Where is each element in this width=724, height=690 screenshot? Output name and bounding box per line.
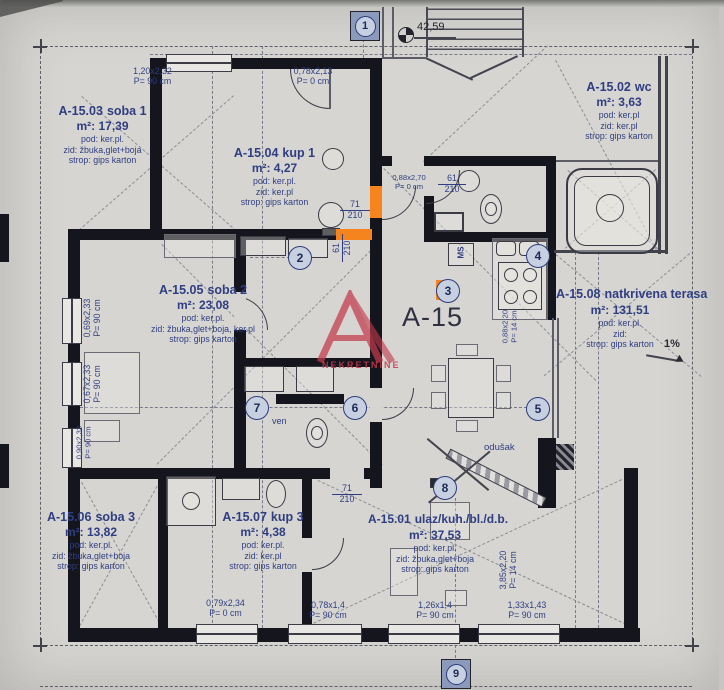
boundary-line-top — [40, 46, 692, 47]
room-area: m²: 13,82 — [6, 525, 176, 539]
photo-edge-corner — [0, 0, 63, 18]
window — [196, 624, 258, 644]
wall-wc — [546, 156, 556, 242]
washbasin — [244, 366, 284, 392]
room-floor: pod: ker.pl. — [360, 543, 510, 554]
dimension-label: 0,69x2,33P= 90 cm — [82, 290, 102, 346]
window — [388, 624, 460, 644]
room-label-soba-2: A-15.05soba 2 m²: 23,08 pod: ker.pl. zid… — [88, 283, 318, 345]
marker-5: 5 — [526, 397, 550, 421]
room-ceiling: strop: gips karton — [6, 561, 176, 572]
corner-tick — [692, 638, 694, 652]
stairs-diagonal — [425, 57, 473, 81]
chair — [456, 344, 478, 356]
room-ceiling: strop: gips karton — [10, 155, 195, 166]
room-area: m²: 131,51 — [540, 303, 700, 317]
corner-tick — [40, 39, 42, 53]
chair — [496, 365, 511, 382]
dining-table — [448, 358, 494, 418]
dimension-label: 0,88x2,20P= 14 cm — [501, 299, 518, 355]
toilet-seat — [485, 202, 497, 216]
room-label-soba-3: A-15.06soba 3 m²: 13,82 pod: ker.pl. zid… — [6, 510, 176, 572]
window — [288, 624, 362, 644]
room-title: A-15.02wc — [524, 80, 714, 94]
room-wall-finish: zid: — [540, 329, 700, 340]
boundary-line-bottom-outer — [40, 686, 692, 687]
chair — [431, 392, 446, 409]
odusak-label: odušak — [484, 442, 515, 453]
vanity — [240, 236, 286, 256]
burner — [504, 268, 518, 282]
terrace-edge — [556, 160, 658, 162]
room-wall-finish: zid: žbuka,glet+boja — [10, 145, 195, 156]
chair — [431, 365, 446, 382]
slope-arrow-line — [646, 354, 678, 362]
dimension-label: 0,78x1,4P= 90 cm — [288, 600, 368, 620]
stairs-diagonal — [470, 55, 518, 79]
room-title: A-15.08natkrivena terasa — [556, 287, 724, 301]
elevation-underline — [414, 37, 456, 39]
chair — [496, 392, 511, 409]
shower-drain — [182, 492, 200, 510]
line — [392, 0, 394, 57]
shower-tray — [434, 212, 464, 232]
photo-edge-left-mark — [0, 444, 9, 488]
wall-stub — [382, 156, 392, 166]
room-floor: pod: ker.pl. — [540, 318, 700, 329]
toilet-seat — [311, 426, 323, 440]
room-floor: pod: ker.pl. — [178, 540, 348, 551]
dimension-label: 0,79x2,34P= 0 cm — [178, 598, 273, 618]
room-floor: pod: ker.pl. — [88, 313, 318, 324]
kitchen-sink — [496, 241, 516, 256]
marker-1: 1 — [350, 11, 380, 41]
wall-bath — [276, 394, 344, 404]
room-wall-finish: zid: žbuka,glet+boja — [6, 551, 176, 562]
watermark-text: NEKRETNINE — [322, 360, 401, 370]
room-label-wc: A-15.02wc m²: 3,63 pod: ker.pl zid: ker.… — [524, 80, 714, 142]
photo-edge-left-mark — [0, 214, 9, 262]
room-label-kup-3: A-15.07kup 3 m²: 4,38 pod: ker.pl. zid: … — [178, 510, 348, 572]
room-area: m²: 23,08 — [88, 298, 318, 312]
dimension-label: 1,33x1,43P= 90 cm — [482, 600, 572, 620]
line — [382, 57, 426, 59]
dimension-label: 0,90x2,33P= 90 cm — [75, 415, 92, 471]
room-floor: pod: ker.pl. — [182, 176, 367, 187]
window — [478, 624, 560, 644]
dimension-label: 3,85x2,20P= 14 cm — [498, 542, 518, 598]
wall-exterior-right — [624, 468, 638, 628]
room-label-kup-1: A-15.04kup 1 m²: 4,27 pod: ker.pl. zid: … — [182, 146, 367, 208]
room-label-soba-1: A-15.03soba 1 m²: 17,39 pod: ker.pl. zid… — [10, 104, 195, 166]
chair — [456, 420, 478, 432]
room-title: A-15.01ulaz/kuh./bl./d.b. — [368, 512, 568, 526]
room-title: A-15.06soba 3 — [6, 510, 176, 524]
vent-shaft-hatch — [556, 444, 574, 470]
burner — [523, 290, 537, 304]
floor-plan: MS 1 2 3 4 5 6 7 8 9 42,59 A-15 1% ven o… — [0, 0, 724, 690]
door-opening — [330, 468, 364, 479]
marker-8: 8 — [433, 476, 457, 500]
wall-wc — [424, 156, 556, 166]
room-wall-finish: zid: ker.pl — [182, 187, 367, 198]
room-area: m²: 3,63 — [524, 95, 714, 109]
room-floor: pod: ker.pl. — [10, 134, 195, 145]
burner — [523, 268, 537, 282]
wall-bath — [234, 240, 246, 470]
room-label-terasa: m²: 131,51 pod: ker.pl. zid: strop: gips… — [540, 302, 700, 350]
washbasin — [222, 478, 260, 500]
room-title: A-15.05soba 2 — [88, 283, 318, 297]
room-ceiling: strop: gips karton — [178, 561, 348, 572]
room-label-terasa-title: A-15.08natkrivena terasa — [556, 287, 724, 301]
room-title: A-15.07kup 3 — [178, 510, 348, 524]
marker-4: 4 — [526, 244, 550, 268]
door-size-label: 61210 — [332, 234, 352, 262]
marker-1-number: 1 — [355, 16, 376, 37]
room-label-ulaz: m²: 37,53 pod: ker.pl. zid: žbuka,glet+b… — [360, 527, 510, 575]
wall-spine — [370, 58, 382, 488]
dimension-label: 0,88x2,70P= 0 cm — [383, 174, 435, 191]
marker-7: 7 — [245, 396, 269, 420]
room-ceiling: strop: gips karton — [540, 339, 700, 350]
room-area: m²: 17,39 — [10, 119, 195, 133]
dimension-label: 0,78x2,13P= 0 cm — [268, 66, 358, 86]
room-wall-finish: zid: ker.pl — [178, 551, 348, 562]
room-ceiling: strop: gips karton — [88, 334, 318, 345]
room-area: m²: 4,38 — [178, 525, 348, 539]
marker-9-number: 9 — [446, 664, 467, 685]
door-size-label: 71210 — [340, 200, 370, 220]
benchmark-icon — [398, 27, 414, 43]
jacuzzi-seat — [596, 194, 624, 222]
dimension-label: 1,20x2,32P= 90 cm — [100, 66, 205, 86]
room-wall-finish: zid: žbuka,glet+boja, ker.pl — [88, 324, 318, 335]
photo-edge-top — [0, 0, 724, 7]
window — [62, 362, 82, 406]
room-area: m²: 37,53 — [360, 528, 510, 542]
boundary-line-bottom — [40, 645, 692, 646]
marker-6: 6 — [343, 396, 367, 420]
room-label-ulaz-title: A-15.01ulaz/kuh./bl./d.b. — [368, 512, 568, 526]
marker-2: 2 — [288, 246, 312, 270]
axis-line-marker2 — [250, 257, 290, 258]
room-floor: pod: ker.pl. — [6, 540, 176, 551]
dimension-label: 0,67x2,33P= 90 cm — [82, 356, 102, 412]
room-wall-finish: zid: ker.pl — [524, 121, 714, 132]
room-ceiling: strop: gips karton — [360, 564, 510, 575]
photo-edge-right — [719, 0, 724, 690]
room-area: m²: 4,27 — [182, 161, 367, 175]
door-size-label: 71210 — [332, 484, 362, 504]
room-ceiling: strop: gips karton — [524, 131, 714, 142]
toilet-icon — [266, 480, 286, 508]
watermark-logo — [312, 290, 422, 368]
furniture — [164, 234, 236, 258]
window — [62, 298, 82, 344]
elevation-label: 42,59 — [417, 21, 445, 33]
room-floor: pod: ker.pl — [524, 110, 714, 121]
marker-3: 3 — [436, 279, 460, 303]
door-arc — [382, 388, 414, 420]
washing-machine-label: MS — [457, 243, 466, 263]
line — [382, 0, 384, 57]
dimension-label: 1,26x1,4P= 90 cm — [390, 600, 480, 620]
room-title: A-15.04kup 1 — [182, 146, 367, 160]
corner-tick — [692, 39, 694, 53]
marker-9: 9 — [441, 659, 471, 689]
vent-label: ven — [272, 416, 287, 426]
highlighted-door-opening — [370, 186, 382, 218]
ramp — [446, 449, 547, 508]
room-wall-finish: zid: žbuka,glet+boja — [360, 554, 510, 565]
door-opening — [370, 388, 382, 422]
corner-tick — [40, 638, 42, 652]
room-title: A-15.03soba 1 — [10, 104, 195, 118]
door-size-label: 61210 — [438, 174, 466, 194]
